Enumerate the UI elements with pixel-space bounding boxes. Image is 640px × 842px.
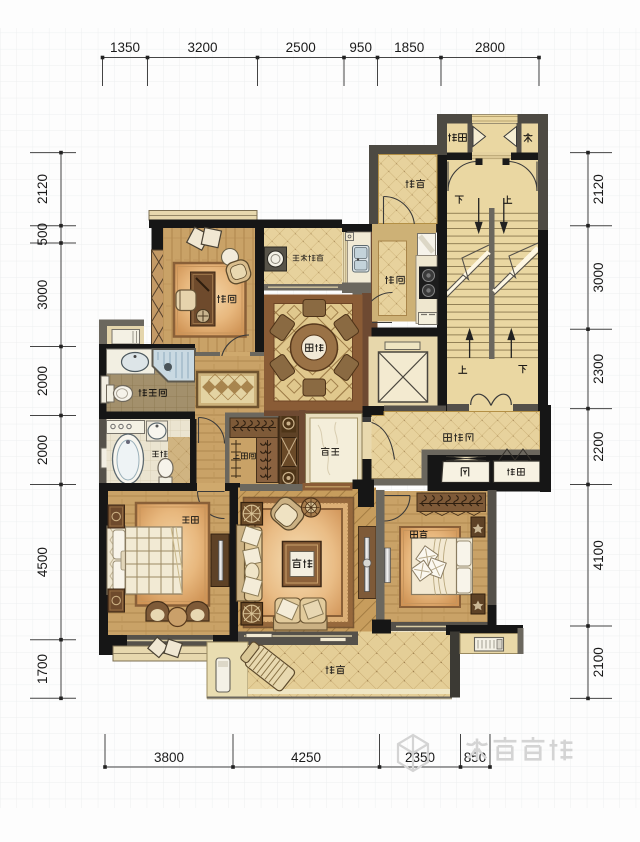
svg-text:2000: 2000 bbox=[35, 435, 50, 465]
svg-text:3200: 3200 bbox=[187, 40, 217, 55]
svg-text:1850: 1850 bbox=[394, 40, 424, 55]
svg-text:2200: 2200 bbox=[591, 432, 606, 462]
svg-text:1700: 1700 bbox=[35, 654, 50, 684]
svg-text:4250: 4250 bbox=[291, 750, 321, 765]
svg-text:1350: 1350 bbox=[110, 40, 140, 55]
svg-text:2100: 2100 bbox=[591, 647, 606, 677]
svg-text:2120: 2120 bbox=[591, 174, 606, 204]
svg-text:3000: 3000 bbox=[591, 262, 606, 292]
svg-text:950: 950 bbox=[349, 40, 372, 55]
svg-text:2300: 2300 bbox=[591, 354, 606, 384]
svg-text:2500: 2500 bbox=[286, 40, 316, 55]
svg-text:2800: 2800 bbox=[475, 40, 505, 55]
svg-text:500: 500 bbox=[35, 223, 50, 246]
svg-text:3800: 3800 bbox=[154, 750, 184, 765]
svg-text:2000: 2000 bbox=[35, 366, 50, 396]
svg-text:4100: 4100 bbox=[591, 540, 606, 570]
svg-text:2350: 2350 bbox=[405, 750, 435, 765]
svg-text:2120: 2120 bbox=[35, 174, 50, 204]
svg-text:3000: 3000 bbox=[35, 280, 50, 310]
svg-text:4500: 4500 bbox=[35, 547, 50, 577]
